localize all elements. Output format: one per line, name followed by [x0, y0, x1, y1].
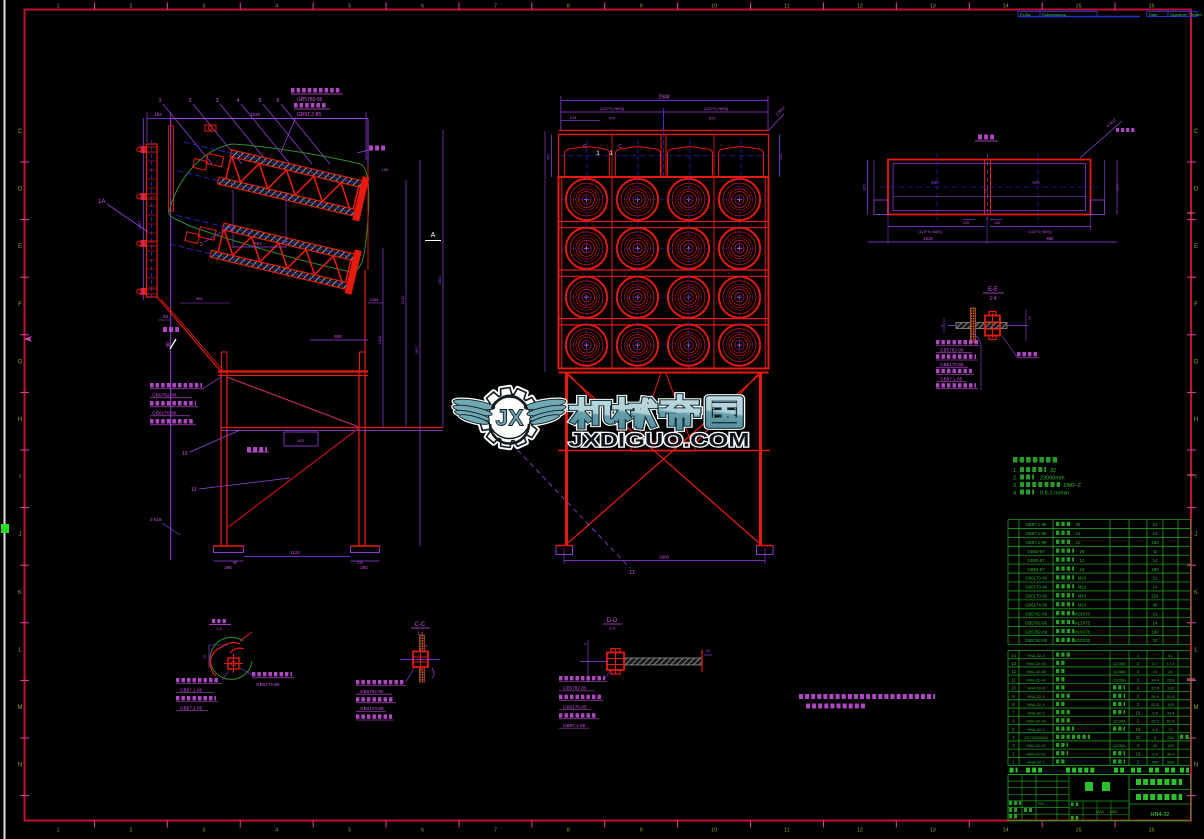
svg-text:1058: 1058 — [377, 335, 382, 345]
svg-text:26: 26 — [1080, 549, 1085, 554]
svg-text:44.8: 44.8 — [1167, 710, 1176, 715]
svg-text:Q235A: Q235A — [1113, 661, 1126, 666]
svg-text:M12: M12 — [1078, 585, 1087, 590]
svg-text:C-C: C-C — [415, 622, 426, 628]
svg-text:42: 42 — [1153, 549, 1158, 554]
svg-text:14.4: 14.4 — [1151, 677, 1160, 682]
svg-text:21: 21 — [1153, 576, 1158, 581]
svg-text:2.8: 2.8 — [1152, 710, 1158, 715]
svg-text:MAD: MAD — [1110, 810, 1118, 814]
svg-text:H: H — [1194, 417, 1198, 423]
svg-text:N: N — [18, 763, 22, 769]
svg-text:GB97.1-85: GB97.1-85 — [940, 376, 963, 381]
svg-text:GB5782-86: GB5782-86 — [1025, 638, 1048, 643]
svg-text:M20: M20 — [1078, 576, 1087, 581]
svg-text:2: 2 — [188, 98, 191, 104]
svg-text:JX: JX — [495, 405, 524, 431]
svg-text:15: 15 — [1076, 828, 1082, 834]
svg-text:10: 10 — [711, 4, 717, 10]
svg-text:26.4: 26.4 — [1151, 694, 1160, 699]
svg-text:GB93-87: GB93-87 — [1027, 558, 1045, 563]
svg-text:1.: 1. — [1013, 468, 1018, 474]
svg-text:M10X75: M10X75 — [1074, 629, 1091, 634]
svg-text:J: J — [1195, 532, 1198, 538]
svg-text:M10: M10 — [1078, 602, 1087, 607]
svg-text:20: 20 — [1168, 669, 1173, 674]
svg-text:E-E: E-E — [988, 287, 998, 293]
svg-text:450: 450 — [546, 153, 551, 160]
svg-text:(120*7(=840)): (120*7(=840)) — [918, 230, 942, 234]
svg-text:280: 280 — [360, 565, 368, 570]
svg-text:2.4: 2.4 — [1152, 751, 1158, 756]
svg-text:GB6170-85: GB6170-85 — [563, 704, 587, 709]
svg-text:M12X75: M12X75 — [1074, 620, 1091, 625]
svg-text:14: 14 — [1153, 620, 1158, 625]
svg-text:GB5782-85: GB5782-85 — [563, 686, 587, 691]
svg-text:960: 960 — [1047, 236, 1055, 241]
svg-text:1:4: 1:4 — [609, 626, 616, 631]
svg-text:MAA: MAA — [1096, 810, 1104, 814]
svg-text:9: 9 — [640, 828, 643, 834]
svg-text:10: 10 — [1153, 669, 1158, 674]
svg-text:M20X70: M20X70 — [1074, 611, 1091, 616]
svg-text:12: 12 — [857, 828, 863, 834]
svg-text:11: 11 — [784, 4, 790, 10]
svg-text:F: F — [1194, 302, 1198, 308]
svg-text:(120*7(=960)): (120*7(=960)) — [600, 106, 625, 111]
svg-text:HN4-32-03: HN4-32-03 — [1026, 719, 1046, 724]
svg-text:GB6170-86: GB6170-86 — [1025, 594, 1048, 599]
svg-text:4.5: 4.5 — [1152, 727, 1158, 732]
svg-text:2: 2 — [129, 4, 132, 10]
svg-text:1: 1 — [56, 4, 59, 10]
svg-text:C: C — [618, 144, 622, 150]
svg-text:16: 16 — [1136, 751, 1141, 756]
svg-text:26: 26 — [1076, 522, 1081, 527]
svg-text:GB6170-86: GB6170-86 — [1025, 576, 1048, 581]
svg-text:160: 160 — [1151, 540, 1159, 545]
svg-text:Q235A: Q235A — [1113, 719, 1126, 724]
svg-text:GB6174-86: GB6174-86 — [1025, 602, 1048, 607]
svg-text:1058: 1058 — [370, 297, 380, 302]
svg-text:GB6174-86: GB6174-86 — [256, 682, 280, 687]
svg-text:14: 14 — [1153, 558, 1158, 563]
svg-text:90: 90 — [233, 561, 237, 565]
svg-text:ZN75Z6000A: ZN75Z6000A — [1024, 735, 1048, 740]
svg-text:Date: Date — [1149, 12, 1158, 17]
svg-text:K: K — [18, 590, 22, 596]
svg-text:7: 7 — [494, 4, 497, 10]
svg-text:14: 14 — [1153, 585, 1158, 590]
svg-text:3: 3 — [215, 98, 218, 104]
svg-text:A: A — [425, 643, 428, 648]
svg-text:16: 16 — [1136, 727, 1141, 732]
svg-text:GB6170-86: GB6170-86 — [940, 362, 964, 367]
svg-text:3: 3 — [200, 242, 203, 248]
svg-text:32: 32 — [1153, 743, 1158, 748]
svg-text:415: 415 — [778, 153, 783, 160]
svg-text:M10: M10 — [1078, 594, 1087, 599]
svg-text:1122: 1122 — [290, 550, 300, 555]
svg-text:GB97.1-86: GB97.1-86 — [180, 687, 203, 692]
svg-text:3: 3 — [202, 4, 205, 10]
svg-text:GB5780-86: GB5780-86 — [297, 97, 323, 103]
svg-text:GB5782-86: GB5782-86 — [1025, 629, 1048, 634]
svg-text:Q235A: Q235A — [1113, 743, 1126, 748]
svg-text:980: 980 — [1167, 760, 1174, 765]
svg-text:32: 32 — [1153, 638, 1158, 643]
svg-text:Pr-Ba: Pr-Ba — [1020, 12, 1031, 17]
svg-text:28.8: 28.8 — [1167, 677, 1176, 682]
svg-text:HN4-32-1: HN4-32-1 — [1027, 760, 1045, 765]
svg-text:M10X30: M10X30 — [1074, 638, 1091, 643]
svg-text:2.: 2. — [1013, 476, 1018, 482]
svg-text:17.4: 17.4 — [1167, 661, 1176, 666]
svg-text:12: 12 — [1080, 558, 1085, 563]
svg-text:280: 280 — [224, 565, 232, 570]
svg-text:HN4-32-3: HN4-32-3 — [1027, 710, 1045, 715]
svg-text:Tested: Tested — [1190, 12, 1202, 17]
svg-text:32: 32 — [1050, 468, 1056, 474]
svg-text:4: 4 — [275, 4, 278, 10]
svg-text:GB5782-86: GB5782-86 — [1025, 620, 1048, 625]
svg-text:130: 130 — [994, 221, 1000, 225]
svg-text:15: 15 — [1076, 4, 1082, 10]
svg-text:52.6: 52.6 — [1167, 719, 1176, 724]
svg-text:11: 11 — [784, 828, 790, 834]
svg-text:4: 4 — [236, 98, 239, 104]
svg-text:1A: 1A — [98, 199, 105, 205]
svg-text:M: M — [1194, 705, 1199, 711]
svg-text:870: 870 — [1115, 183, 1120, 190]
svg-text:184: 184 — [154, 112, 162, 117]
svg-text:870: 870 — [862, 183, 867, 190]
svg-text:26.3: 26.3 — [1151, 719, 1160, 724]
svg-text:Signature: Signature — [1170, 12, 1188, 17]
svg-text:1618: 1618 — [923, 236, 933, 241]
svg-text:490: 490 — [1152, 760, 1159, 765]
svg-text:13: 13 — [182, 451, 188, 457]
svg-text:5: 5 — [348, 828, 351, 834]
svg-text:: 0.8-1 m/min: : 0.8-1 m/min — [1037, 491, 1069, 497]
svg-text:56: 56 — [163, 314, 169, 319]
svg-text:G: G — [18, 359, 23, 365]
svg-text:946: 946 — [1032, 180, 1040, 185]
svg-text:D: D — [1194, 187, 1199, 193]
svg-text:GB97.1-85: GB97.1-85 — [1026, 540, 1047, 545]
svg-text:256: 256 — [1167, 735, 1174, 740]
svg-text:32: 32 — [1136, 735, 1141, 740]
svg-text:D: D — [18, 187, 23, 193]
svg-text:10: 10 — [1011, 686, 1016, 691]
svg-text:564: 564 — [254, 241, 262, 246]
svg-text:5: 5 — [258, 98, 261, 104]
svg-text:105: 105 — [1167, 702, 1174, 707]
svg-text:C: C — [583, 144, 587, 150]
svg-text:6: 6 — [421, 4, 424, 10]
svg-text:50: 50 — [706, 649, 710, 653]
svg-text:10: 10 — [1080, 567, 1085, 572]
svg-text:C: C — [1194, 129, 1199, 135]
svg-text:21: 21 — [1153, 522, 1158, 527]
svg-text:H: H — [18, 417, 22, 423]
svg-text:13: 13 — [930, 4, 936, 10]
svg-text:32.4: 32.4 — [1151, 686, 1160, 691]
svg-text:C: C — [18, 129, 23, 135]
svg-text:E: E — [1194, 244, 1198, 250]
svg-text:40: 40 — [1153, 602, 1158, 607]
svg-text:13: 13 — [1011, 661, 1016, 666]
svg-text:210: 210 — [357, 561, 363, 565]
svg-text:HN4-32-2: HN4-32-2 — [1027, 727, 1045, 732]
svg-text:A: A — [431, 232, 436, 239]
svg-text:16: 16 — [1148, 828, 1154, 834]
svg-text:N: N — [1194, 763, 1198, 769]
svg-text:16: 16 — [1136, 710, 1141, 715]
svg-text:2827: 2827 — [414, 345, 419, 355]
svg-text:14: 14 — [1003, 4, 1009, 10]
svg-text:E: E — [18, 244, 22, 250]
svg-text:224: 224 — [1151, 594, 1159, 599]
svg-text:12: 12 — [857, 4, 863, 10]
svg-text:HN4-32-5: HN4-32-5 — [1027, 694, 1045, 699]
svg-text:1:4: 1:4 — [216, 626, 222, 631]
svg-text:1: 1 — [596, 150, 600, 157]
svg-text:7: 7 — [494, 828, 497, 834]
svg-text:GB5782-86: GB5782-86 — [940, 348, 964, 353]
svg-text:11: 11 — [1011, 677, 1016, 682]
svg-text:11: 11 — [629, 570, 634, 576]
svg-text:920: 920 — [709, 116, 716, 121]
svg-text:12: 12 — [1011, 669, 1016, 674]
svg-text:3: 3 — [202, 828, 205, 834]
svg-text:1: 1 — [158, 98, 161, 104]
svg-text:160: 160 — [1151, 629, 1159, 634]
svg-text:3.: 3. — [1013, 483, 1018, 489]
svg-text:8: 8 — [941, 324, 943, 328]
svg-text:124: 124 — [570, 115, 577, 120]
svg-text:150: 150 — [382, 167, 389, 172]
svg-text:9: 9 — [640, 4, 643, 10]
svg-text:Q235A: Q235A — [1113, 677, 1126, 682]
svg-text:589: 589 — [196, 296, 203, 301]
svg-text:1:4: 1:4 — [990, 296, 997, 302]
svg-text:HN4-32-01: HN4-32-01 — [1026, 751, 1046, 756]
svg-text:Rubberstamp: Rubberstamp — [1042, 12, 1067, 17]
svg-text:13: 13 — [930, 828, 936, 834]
svg-text:Q235A: Q235A — [1113, 669, 1126, 674]
svg-text:GB97.1-85: GB97.1-85 — [563, 723, 586, 728]
svg-text:HN4-32-06: HN4-32-06 — [1026, 661, 1046, 666]
svg-text:(120*7(=960)): (120*7(=960)) — [704, 106, 729, 111]
svg-text:2822: 2822 — [437, 275, 442, 285]
svg-text:G: G — [1194, 359, 1199, 365]
svg-text:72: 72 — [1168, 727, 1173, 732]
svg-text:620: 620 — [298, 438, 305, 443]
svg-text:52.5: 52.5 — [1151, 702, 1160, 707]
svg-text:14: 14 — [1153, 531, 1158, 536]
svg-text:B: B — [166, 343, 170, 349]
svg-text:10: 10 — [711, 828, 717, 834]
svg-text:8: 8 — [567, 828, 570, 834]
svg-text:K: K — [1194, 590, 1198, 596]
svg-text:4.: 4. — [1013, 491, 1018, 497]
svg-text:10: 10 — [1076, 540, 1081, 545]
svg-text:21: 21 — [1153, 611, 1158, 616]
svg-text:16: 16 — [1148, 4, 1154, 10]
svg-text:GB93-87: GB93-87 — [1027, 567, 1045, 572]
svg-text:4: 4 — [275, 828, 278, 834]
svg-text:D-D: D-D — [607, 618, 618, 624]
svg-text:59: 59 — [985, 189, 989, 193]
svg-text:J: J — [19, 532, 22, 538]
svg-text:HN4-32: HN4-32 — [1151, 812, 1170, 818]
svg-text:GB97.2-85: GB97.2-85 — [297, 112, 321, 118]
svg-text:25: 25 — [203, 655, 207, 659]
svg-text:GB5782-85: GB5782-85 — [360, 689, 384, 694]
svg-text:1: 1 — [609, 150, 613, 157]
svg-text:HN4-32-6: HN4-32-6 — [1027, 686, 1045, 691]
svg-text:128: 128 — [1167, 743, 1174, 748]
svg-text:14: 14 — [1011, 653, 1016, 658]
svg-text:HN4-32-02: HN4-32-02 — [1026, 743, 1046, 748]
svg-text:12: 12 — [1076, 531, 1081, 536]
svg-text:52.8: 52.8 — [1167, 694, 1176, 699]
svg-text:12: 12 — [191, 487, 197, 493]
svg-text:F: F — [18, 302, 22, 308]
svg-text:8.7: 8.7 — [1152, 661, 1158, 666]
svg-text:6: 6 — [421, 828, 424, 834]
svg-text:(120*7(=840)): (120*7(=840)) — [1028, 230, 1052, 234]
svg-text:HN4-32-3: HN4-32-3 — [1027, 653, 1045, 658]
svg-text:1930: 1930 — [250, 112, 261, 117]
svg-text:605: 605 — [334, 334, 342, 339]
svg-text:8: 8 — [567, 4, 570, 10]
svg-text:946: 946 — [931, 180, 939, 185]
svg-text:38.4: 38.4 — [1167, 751, 1176, 756]
svg-text:GB97.1-85: GB97.1-85 — [1026, 531, 1047, 536]
svg-text:GB93-87: GB93-87 — [1027, 549, 1045, 554]
svg-text:: 23000m/h: : 23000m/h — [1037, 476, 1065, 482]
svg-text:GB97.1-85: GB97.1-85 — [180, 705, 203, 710]
svg-text:2-618: 2-618 — [150, 517, 162, 522]
svg-text:120: 120 — [963, 221, 969, 225]
svg-text:25: 25 — [1028, 316, 1032, 320]
svg-text:51: 51 — [1168, 653, 1173, 658]
svg-text:2: 2 — [129, 828, 132, 834]
svg-text:1152: 1152 — [400, 295, 405, 304]
svg-text:JXDIGUO.COM: JXDIGUO.COM — [569, 431, 750, 452]
svg-text:130: 130 — [1167, 686, 1174, 691]
svg-text:HN4-32-05: HN4-32-05 — [1026, 669, 1046, 674]
svg-text:970: 970 — [609, 116, 616, 121]
svg-text:6: 6 — [276, 98, 279, 104]
svg-text:GB6170-86: GB6170-86 — [360, 706, 384, 711]
svg-text:160: 160 — [1151, 567, 1159, 572]
svg-text:GB5782-86: GB5782-86 — [1025, 611, 1048, 616]
svg-text:GB6170-86: GB6170-86 — [1025, 585, 1048, 590]
svg-text:HN4-32-04: HN4-32-04 — [1026, 677, 1046, 682]
svg-text:5: 5 — [348, 4, 351, 10]
svg-text:1: 1 — [56, 828, 59, 834]
svg-text:SH: SH — [1038, 801, 1044, 806]
svg-text:GB97.1-85: GB97.1-85 — [1026, 522, 1047, 527]
svg-text:HN4-32-4: HN4-32-4 — [1027, 702, 1045, 707]
svg-text:14: 14 — [1003, 828, 1009, 834]
svg-text:M: M — [18, 705, 23, 711]
svg-text:2948: 2948 — [658, 95, 669, 101]
svg-text:-DMF-Z: -DMF-Z — [1062, 483, 1082, 489]
svg-text:1900: 1900 — [659, 555, 670, 560]
